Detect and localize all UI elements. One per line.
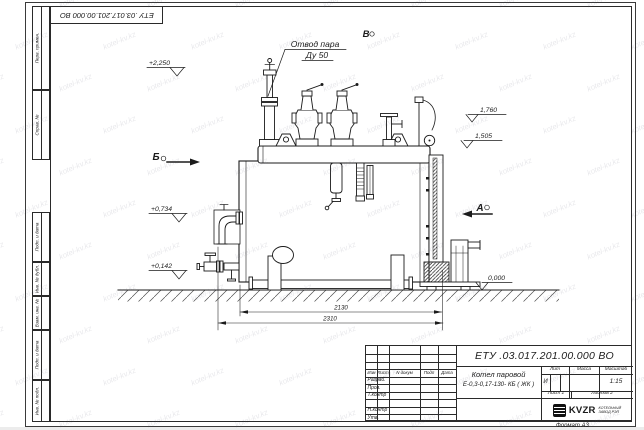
title-block-line bbox=[366, 354, 456, 355]
product-code: Е-0,3-0,17-130- КБ ( ЖК ) bbox=[456, 382, 541, 388]
elevation-valve-top: +2,250 bbox=[149, 60, 170, 67]
staff-row-utv: Утв. bbox=[368, 416, 379, 421]
dimension-2310: 2310 bbox=[322, 316, 337, 323]
sheet-cell: Лист 1 bbox=[541, 392, 571, 397]
safety-valve bbox=[327, 83, 359, 146]
company-tagline-line2: ЗАВОД РЭП bbox=[599, 410, 622, 414]
mass-label: Масса bbox=[569, 368, 599, 373]
sheet-label: Лист bbox=[548, 391, 560, 396]
elevation-ground: 0,000 bbox=[488, 275, 505, 282]
product-name: Котел паровой bbox=[456, 371, 541, 379]
view-label-a: А bbox=[475, 203, 483, 214]
sheets-cell: Листов 2 bbox=[571, 392, 633, 397]
title-block-line bbox=[366, 399, 456, 400]
burner-elbow bbox=[214, 205, 243, 245]
sight-glass bbox=[273, 247, 294, 264]
staff-row-nkontr: Н.контр bbox=[368, 408, 388, 413]
change-col-data: Дата bbox=[438, 371, 456, 375]
change-col-podp: Подп bbox=[420, 371, 438, 375]
callout-text-line1: Отвод пара bbox=[291, 39, 340, 49]
title-block-line bbox=[366, 362, 456, 363]
change-col-izm: Изм bbox=[366, 371, 377, 375]
sheets-label: Листов bbox=[591, 391, 608, 396]
sheets-total: 2 bbox=[610, 391, 613, 396]
lit-label: Лит bbox=[541, 368, 569, 373]
title-block: Изм Лист N докум Подп Дата Разраб. Пров.… bbox=[365, 345, 632, 421]
title-block-line bbox=[541, 374, 633, 375]
company-name: KVZR bbox=[569, 405, 596, 416]
scale-label: Масштаб bbox=[599, 368, 633, 373]
staff-row-prov: Пров. bbox=[368, 386, 381, 391]
fan-motor bbox=[424, 262, 449, 282]
kvzr-logo-icon bbox=[553, 404, 566, 417]
elevation-right-upper: 1,760 bbox=[480, 107, 497, 114]
steam-header-drum bbox=[258, 146, 430, 163]
lifting-lug bbox=[276, 134, 296, 146]
drawing-sheet: ЕТУ .03.017.201.00.000 ВО Перв. примен. … bbox=[0, 0, 644, 430]
callout-text-line2: Ду 50 bbox=[305, 50, 328, 60]
lit-value: И bbox=[541, 379, 550, 385]
title-block-line bbox=[456, 398, 541, 399]
safety-valve bbox=[292, 83, 324, 146]
pressure-gauge bbox=[415, 97, 435, 146]
view-mark-v bbox=[370, 32, 374, 36]
ground-line bbox=[118, 290, 559, 302]
steam-outlet-pipe bbox=[260, 59, 280, 147]
elevation-drain: +0,142 bbox=[151, 263, 172, 270]
dimension-2130: 2130 bbox=[333, 305, 348, 312]
view-arrow-b bbox=[161, 156, 200, 165]
staff-row-tkontr: Т.контр bbox=[368, 393, 387, 398]
elevation-right-lower: 1,505 bbox=[475, 133, 492, 140]
change-col-ndoc: N докум bbox=[389, 371, 420, 375]
scale-value: 1:15 bbox=[599, 379, 633, 386]
staff-row-razrab: Разраб. bbox=[368, 378, 386, 383]
elevation-burner: +0,734 bbox=[151, 206, 172, 213]
title-block-line bbox=[550, 374, 551, 391]
change-col-list: Лист bbox=[377, 371, 389, 375]
title-block-designation: ЕТУ .03.017.201.00.000 ВО bbox=[456, 351, 633, 362]
view-label-b: Б bbox=[152, 152, 159, 163]
company-tagline: КОТЕЛЬНЫЙ ЗАВОД РЭП bbox=[599, 406, 622, 415]
company-cell: KVZR КОТЕЛЬНЫЙ ЗАВОД РЭП bbox=[541, 398, 633, 422]
title-block-line bbox=[560, 374, 561, 391]
view-label-v: В bbox=[363, 29, 370, 40]
sheet-number: 1 bbox=[562, 391, 565, 396]
title-block-line bbox=[366, 414, 456, 415]
